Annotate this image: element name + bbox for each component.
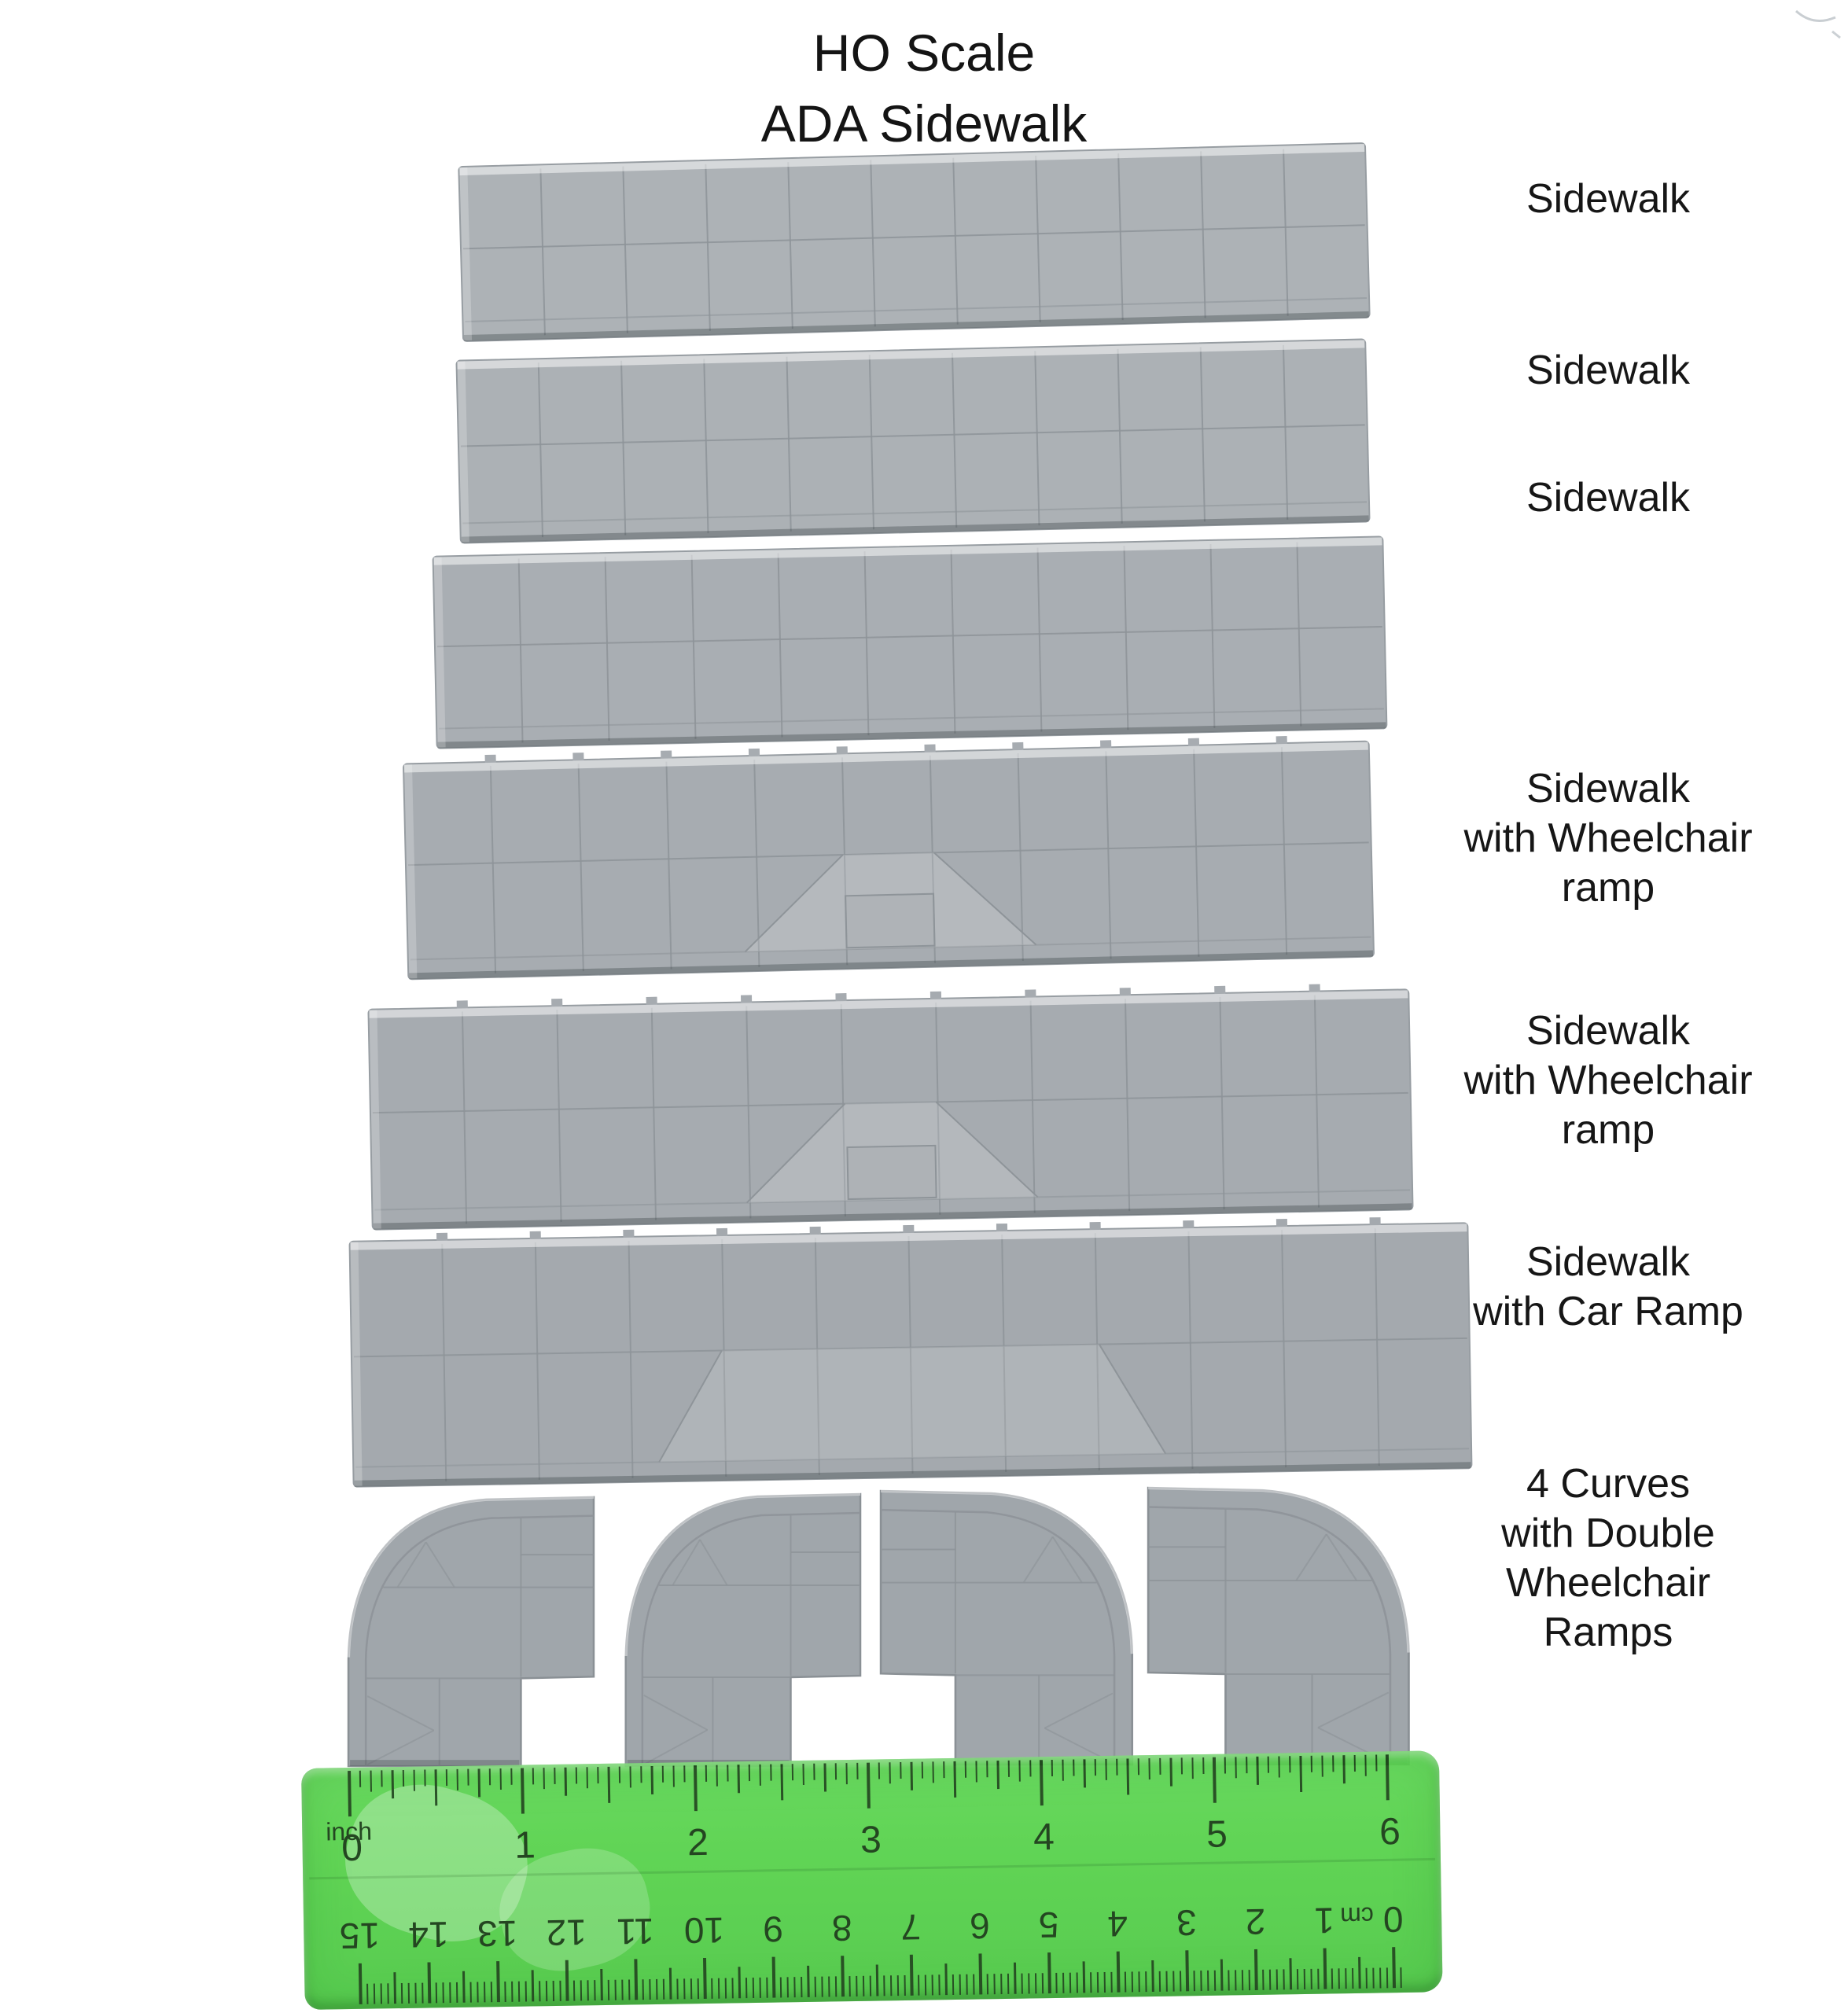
svg-text:cm: cm — [1340, 1902, 1374, 1931]
label-line: Sidewalk — [1435, 473, 1781, 523]
page-title: HO Scale ADA Sidewalk — [629, 17, 1219, 159]
svg-text:1: 1 — [1314, 1900, 1334, 1941]
label-line: with Wheelchair — [1435, 814, 1781, 863]
svg-text:3: 3 — [1176, 1902, 1197, 1943]
photo-artifact-mark — [1791, 3, 1848, 44]
svg-text:10: 10 — [683, 1910, 724, 1952]
sidewalk-strip-wheelchair-ramp-2 — [367, 988, 1413, 1230]
label-sidewalk-wheelchair-ramp-2: Sidewalk with Wheelchair ramp — [1435, 1006, 1781, 1155]
label-line: ramp — [1435, 863, 1781, 913]
label-line: with Car Ramp — [1435, 1287, 1781, 1337]
sidewalk-strip-car-ramp — [348, 1222, 1472, 1488]
sidewalk-strip-2 — [455, 338, 1370, 543]
svg-text:9: 9 — [763, 1908, 783, 1949]
label-line: Wheelchair — [1435, 1559, 1781, 1608]
label-sidewalk-1: Sidewalk — [1435, 175, 1781, 224]
product-photo-page: HO Scale ADA Sidewalk 0123456inch1514131… — [0, 0, 1848, 2013]
label-line: Sidewalk — [1435, 175, 1781, 224]
inch-scale: 0123456inch — [325, 1754, 1401, 1869]
label-line: ramp — [1435, 1106, 1781, 1155]
ruler-scales: 0123456inch1514131211109876543210cm — [301, 1750, 1443, 2010]
label-line: Sidewalk — [1435, 346, 1781, 396]
svg-text:5: 5 — [1038, 1904, 1058, 1945]
label-sidewalk-wheelchair-ramp-1: Sidewalk with Wheelchair ramp — [1435, 764, 1781, 913]
label-line: Ramps — [1435, 1608, 1781, 1658]
label-line: with Wheelchair — [1435, 1056, 1781, 1106]
label-line: Sidewalk — [1435, 764, 1781, 814]
curve-piece-1 — [342, 1492, 595, 1771]
curve-piece-4 — [1147, 1483, 1415, 1769]
svg-text:6: 6 — [1379, 1811, 1401, 1853]
label-line: Sidewalk — [1435, 1238, 1781, 1287]
label-line: Sidewalk — [1435, 1006, 1781, 1056]
svg-text:3: 3 — [860, 1819, 882, 1860]
svg-text:12: 12 — [546, 1912, 587, 1953]
svg-text:5: 5 — [1206, 1814, 1228, 1856]
svg-text:0: 0 — [1382, 1899, 1403, 1940]
label-sidewalk-2: Sidewalk — [1435, 346, 1781, 396]
sidewalk-strip-3 — [433, 535, 1388, 749]
label-line: 4 Curves — [1435, 1459, 1781, 1509]
svg-text:7: 7 — [900, 1907, 921, 1948]
svg-text:4: 4 — [1033, 1816, 1055, 1858]
svg-text:14: 14 — [408, 1914, 449, 1956]
sidewalk-strip-1 — [458, 142, 1370, 342]
svg-text:2: 2 — [687, 1822, 709, 1864]
label-sidewalk-car-ramp: Sidewalk with Car Ramp — [1435, 1238, 1781, 1337]
ruler: 0123456inch1514131211109876543210cm — [301, 1750, 1443, 2010]
label-line: with Double — [1435, 1509, 1781, 1559]
svg-text:6: 6 — [970, 1905, 990, 1946]
svg-text:8: 8 — [831, 1908, 852, 1949]
curve-piece-2 — [620, 1489, 862, 1771]
svg-text:13: 13 — [477, 1913, 518, 1955]
sidewalk-strip-wheelchair-ramp-1 — [403, 741, 1375, 981]
curve-piece-3 — [879, 1486, 1139, 1769]
label-curves: 4 Curves with Double Wheelchair Ramps — [1435, 1459, 1781, 1658]
svg-text:1: 1 — [514, 1824, 536, 1866]
title-line-1: HO Scale — [629, 17, 1219, 88]
svg-text:inch: inch — [326, 1817, 372, 1846]
svg-text:2: 2 — [1245, 1901, 1265, 1942]
cm-scale: 1514131211109876543210cm — [339, 1899, 1404, 2004]
svg-text:4: 4 — [1107, 1904, 1128, 1945]
svg-text:15: 15 — [339, 1915, 380, 1956]
label-sidewalk-3: Sidewalk — [1435, 473, 1781, 523]
svg-text:11: 11 — [617, 1911, 655, 1952]
